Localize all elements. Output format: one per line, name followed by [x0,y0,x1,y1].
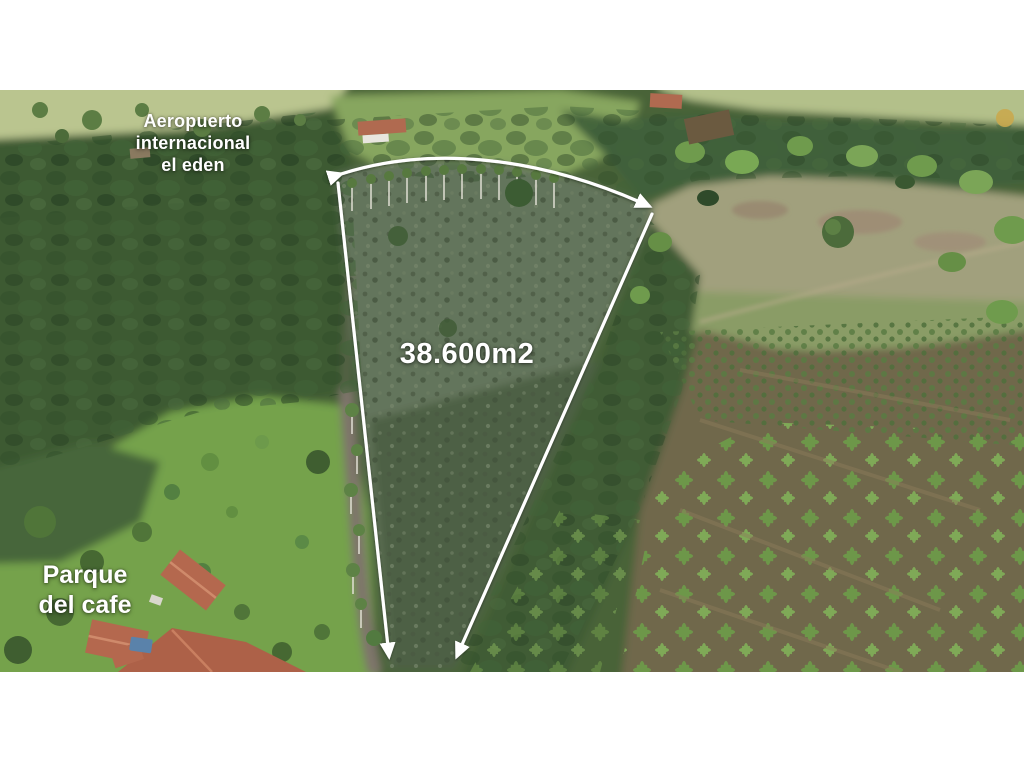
airport-label-line3: el eden [103,154,283,176]
park-label-line2: del cafe [3,590,167,620]
park-label: Parque del cafe [3,560,167,620]
airport-label-line2: internacional [103,132,283,154]
boundary-top-arc [341,158,649,206]
park-label-line1: Parque [3,560,167,590]
screenshot-canvas: Aeropuerto internacional el eden 38.600m… [0,0,1024,768]
area-label: 38.600m2 [357,338,577,371]
boundary-right-edge [457,214,652,656]
aerial-photo: Aeropuerto internacional el eden 38.600m… [0,90,1024,672]
airport-label-line1: Aeropuerto [103,110,283,132]
boundary-left-edge [338,183,389,656]
airport-label: Aeropuerto internacional el eden [103,110,283,176]
